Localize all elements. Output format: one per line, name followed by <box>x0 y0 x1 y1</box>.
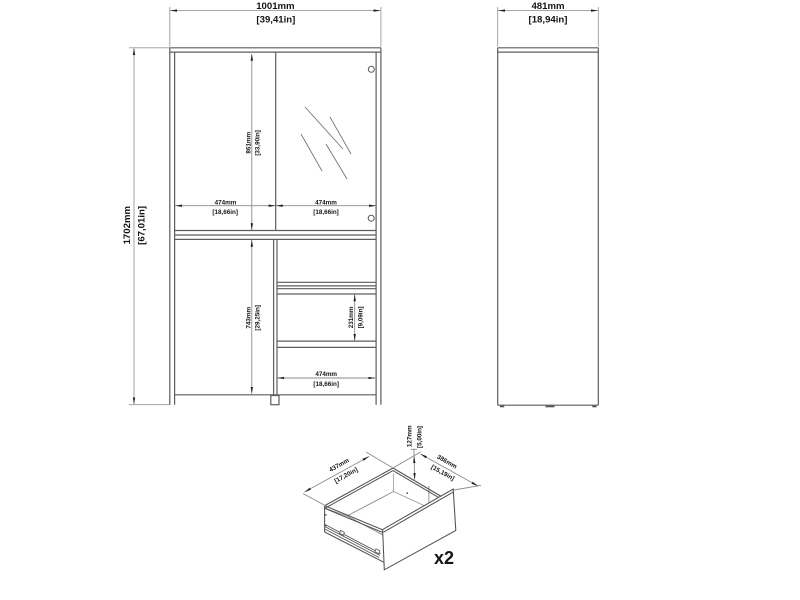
svg-text:[29,25in]: [29,25in] <box>254 305 261 331</box>
svg-text:[18,94in]: [18,94in] <box>529 14 568 25</box>
svg-text:743mm: 743mm <box>245 307 252 329</box>
svg-text:[9,09in]: [9,09in] <box>358 306 365 328</box>
svg-text:[18,66in]: [18,66in] <box>313 209 339 216</box>
svg-text:[18,66in]: [18,66in] <box>212 209 238 216</box>
svg-text:481mm: 481mm <box>531 1 564 12</box>
svg-text:474mm: 474mm <box>315 371 337 378</box>
svg-text:1702mm: 1702mm <box>122 206 133 244</box>
svg-text:[67,01in]: [67,01in] <box>137 206 148 245</box>
svg-text:231mm: 231mm <box>348 306 355 328</box>
svg-text:474mm: 474mm <box>215 199 237 206</box>
svg-text:1001mm: 1001mm <box>256 1 294 12</box>
svg-text:x2: x2 <box>434 548 454 568</box>
svg-text:127mm: 127mm <box>406 425 413 447</box>
svg-text:[33,90in]: [33,90in] <box>254 130 261 156</box>
svg-text:[39,41in]: [39,41in] <box>256 14 295 25</box>
svg-text:[5,00in]: [5,00in] <box>416 426 423 448</box>
svg-text:861mm: 861mm <box>245 132 252 154</box>
svg-text:474mm: 474mm <box>315 199 337 206</box>
svg-text:[18,66in]: [18,66in] <box>313 381 339 388</box>
